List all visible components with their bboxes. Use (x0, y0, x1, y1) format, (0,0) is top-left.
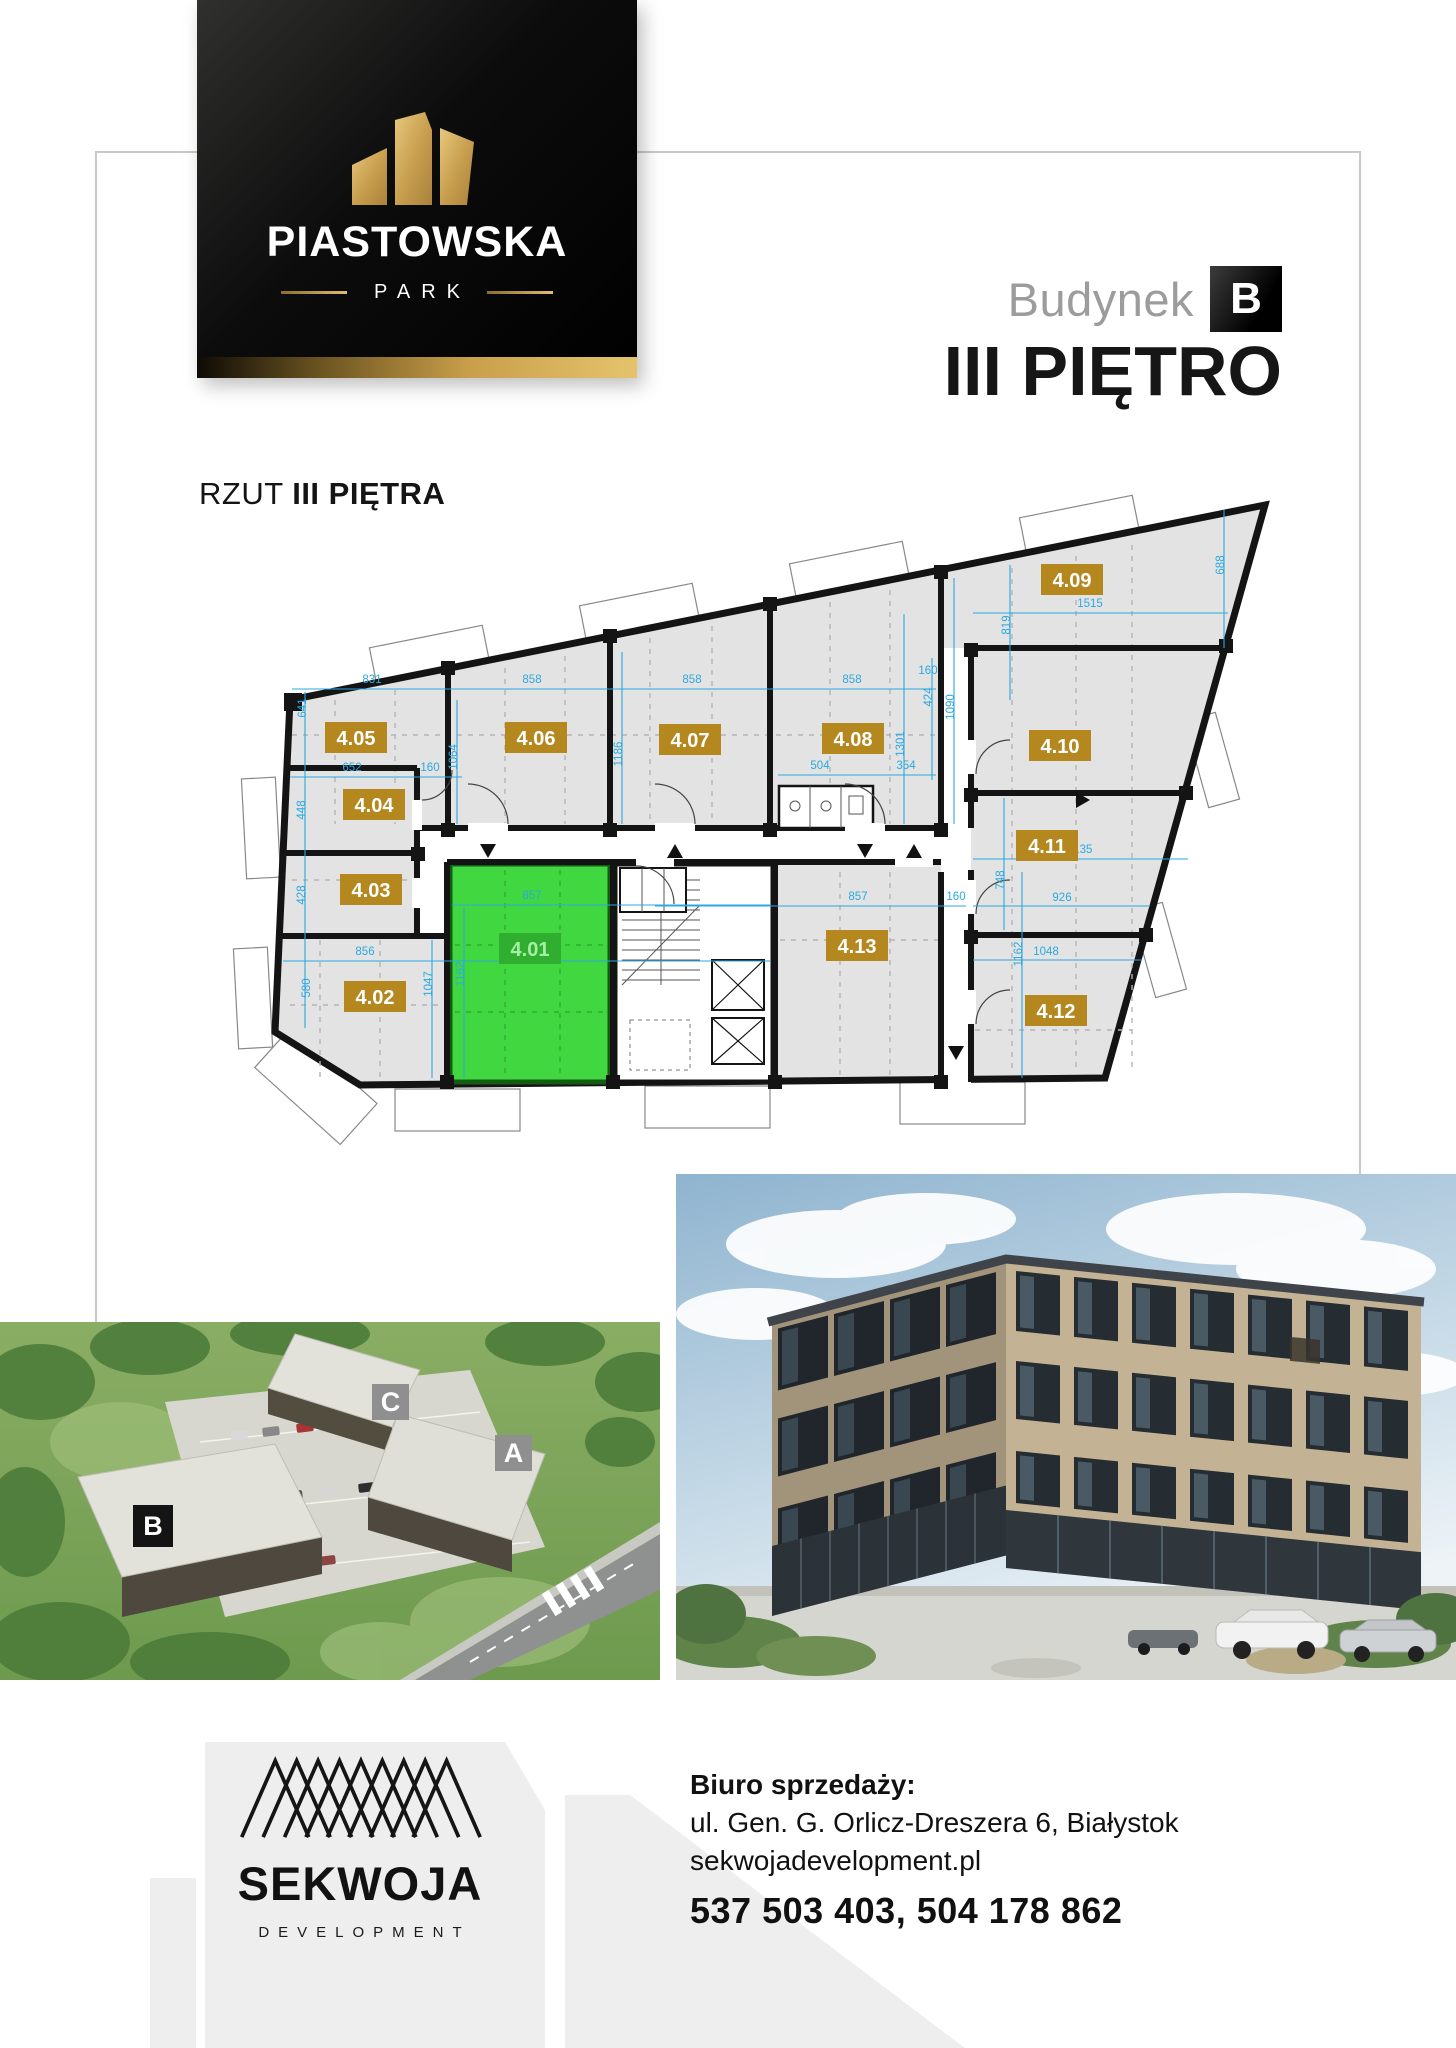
dimension-label: 1048 (1033, 946, 1059, 958)
building-label-B: B (133, 1505, 173, 1547)
dimension-label: 1064 (448, 744, 460, 770)
dimension-label: 160 (420, 762, 439, 774)
dimension-label: 819 (1001, 615, 1013, 634)
bathroom-408 (779, 786, 873, 828)
svg-text:4.10: 4.10 (1041, 736, 1080, 758)
building-letter-badge: B (1210, 266, 1282, 332)
sekwoja-zigzag-icon (238, 1752, 482, 1844)
dimension-label: 831 (362, 674, 381, 686)
brand-towers-icon (197, 0, 637, 215)
facade-logo-mark (1290, 1337, 1320, 1364)
svg-text:4.04: 4.04 (355, 795, 395, 817)
unit-label-4-12: 4.12 (1025, 995, 1087, 1026)
dimension-label: 160 (946, 891, 965, 903)
developer-name: SEKWOJA (160, 1856, 560, 1911)
dimension-label: 1301 (895, 731, 907, 757)
page-frame-right (1359, 151, 1361, 1206)
unit-label-4-13: 4.13 (826, 930, 888, 961)
dimension-label: 1162 (455, 962, 467, 987)
dimension-label: 580 (301, 978, 313, 997)
unit-label-4-10: 4.10 (1029, 730, 1091, 761)
unit-label-4-11: 4.11 (1016, 830, 1078, 861)
dimension-label: 857 (848, 891, 867, 903)
unit-label-4-01: 4.01 (499, 933, 561, 964)
developer-subtitle: DEVELOPMENT (160, 1924, 560, 1941)
dimension-label: 926 (1052, 892, 1071, 904)
dimension-label: 688 (1215, 555, 1227, 574)
svg-text:4.09: 4.09 (1053, 570, 1092, 592)
sales-office-phones: 537 503 403, 504 178 862 (690, 1890, 1179, 1932)
svg-text:4.06: 4.06 (517, 728, 556, 750)
building-label-C: C (372, 1384, 409, 1420)
dimension-label: 858 (522, 674, 541, 686)
dimension-label: 857 (522, 890, 541, 902)
facade-left (772, 1263, 1006, 1616)
dimension-label: 354 (896, 760, 916, 772)
dimension-label: 1515 (1077, 598, 1103, 610)
unit-label-4-04: 4.04 (343, 789, 405, 820)
dimension-label: 858 (682, 674, 701, 686)
dimension-label: 160 (918, 665, 937, 677)
dimension-label: 856 (355, 946, 374, 958)
dimension-label: 428 (296, 885, 308, 904)
page-header: Budynek B III PIĘTRO (944, 266, 1282, 406)
brand-rule-left (281, 291, 347, 294)
unit-label-4-02: 4.02 (344, 981, 406, 1012)
stair-core (616, 865, 772, 1081)
sales-office-label: Biuro sprzedaży: (690, 1766, 1179, 1804)
dimension-label: 748 (995, 870, 1007, 889)
dimension-label: 652 (342, 762, 361, 774)
dimension-label: 641 (297, 698, 309, 717)
brand-logo-card: PIASTOWSKA PARK (197, 0, 637, 378)
dimension-label: 448 (296, 800, 308, 819)
brand-gold-bar (197, 357, 637, 378)
floor-plan: 8318588588581601515688819641106411861301… (185, 480, 1335, 1160)
dimension-label: 424 (923, 687, 935, 707)
brand-name: PIASTOWSKA (197, 218, 637, 267)
svg-text:4.01: 4.01 (511, 939, 550, 961)
building-label: Budynek (1008, 272, 1194, 327)
plan-caption-prefix: RZUT (199, 476, 292, 511)
svg-text:4.12: 4.12 (1037, 1001, 1076, 1023)
floor-title: III PIĘTRO (944, 336, 1282, 406)
brand-rule-right (487, 291, 553, 294)
svg-text:4.11: 4.11 (1028, 836, 1066, 858)
unit-label-4-08: 4.08 (822, 723, 884, 754)
building-label-A: A (495, 1435, 532, 1471)
dimension-label: 1162 (1013, 942, 1025, 967)
unit-label-4-06: 4.06 (505, 722, 567, 753)
svg-text:4.02: 4.02 (356, 987, 395, 1009)
plan-caption: RZUT III PIĘTRA (199, 476, 445, 512)
unit-label-4-09: 4.09 (1041, 564, 1103, 595)
brand-subtitle: PARK (363, 281, 471, 304)
svg-text:4.07: 4.07 (671, 730, 710, 752)
dimension-label: 1090 (945, 694, 957, 720)
page-frame-left (95, 151, 97, 1466)
unit-label-4-07: 4.07 (659, 724, 721, 755)
facade-right (1006, 1262, 1421, 1610)
plan-caption-bold: III PIĘTRA (292, 476, 445, 511)
unit-label-4-03: 4.03 (340, 874, 402, 905)
sales-office-info: Biuro sprzedaży: ul. Gen. G. Orlicz-Dres… (690, 1766, 1179, 1932)
sales-office-website: sekwojadevelopment.pl (690, 1842, 1179, 1880)
svg-text:4.03: 4.03 (352, 880, 391, 902)
svg-text:4.13: 4.13 (838, 936, 877, 958)
unit-label-4-05: 4.05 (325, 722, 387, 753)
dimension-label: 1186 (613, 742, 625, 767)
dimension-label: 858 (842, 674, 861, 686)
building-photo-render (676, 1174, 1456, 1680)
sales-office-address: ul. Gen. G. Orlicz-Dreszera 6, Białystok (690, 1804, 1179, 1842)
dimension-label: 1047 (423, 971, 435, 997)
svg-text:4.08: 4.08 (834, 729, 873, 751)
svg-text:4.05: 4.05 (337, 728, 376, 750)
site-aerial-render (0, 1322, 660, 1680)
dimension-label: 504 (810, 760, 830, 772)
